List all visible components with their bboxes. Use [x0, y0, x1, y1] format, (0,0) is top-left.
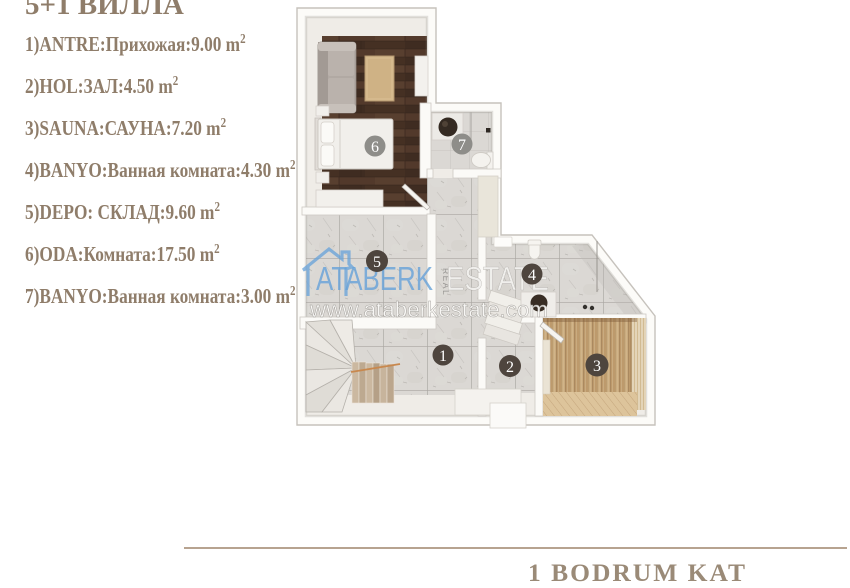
svg-text:www.ataberkestate.com: www.ataberkestate.com [309, 297, 548, 322]
svg-text:5: 5 [373, 254, 381, 271]
svg-text:6: 6 [371, 139, 379, 156]
svg-text:7: 7 [458, 137, 466, 154]
svg-text:3: 3 [593, 358, 601, 375]
svg-text:4: 4 [528, 267, 536, 284]
svg-text:1: 1 [439, 348, 447, 365]
svg-text:2: 2 [506, 359, 514, 376]
